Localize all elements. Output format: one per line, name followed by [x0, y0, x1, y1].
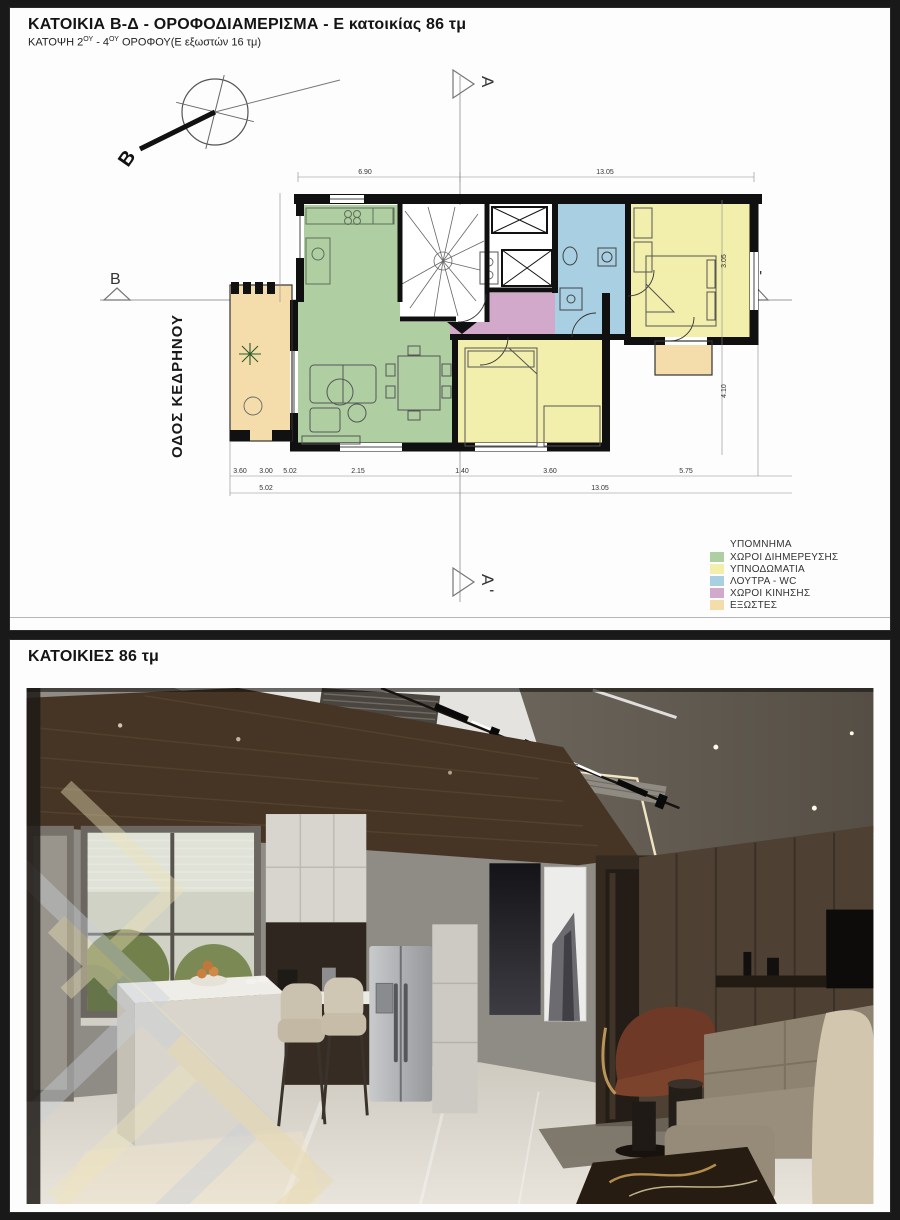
svg-text:5.75: 5.75	[679, 468, 693, 475]
svg-text:13.05: 13.05	[596, 169, 614, 176]
legend-color-chip	[710, 588, 724, 598]
floor-plan-drawing: B A A ' B B ' ΟΔΟΣ ΚΕΔΡΗΝΟΥ	[10, 56, 890, 614]
plan-subtitle: ΚΑΤΟΨΗ 2ΟΥ - 4ΟΥ ΟΡΟΦΟΥ(Ε εξωστών 16 τμ)	[28, 36, 466, 49]
north-label: B	[114, 146, 140, 170]
photo-title: ΚΑΤΟΙΚΙΕΣ 86 τμ	[28, 648, 159, 666]
room-bedroom-1	[628, 200, 758, 341]
svg-text:A ': A '	[478, 574, 497, 592]
photo-header: ΚΑΤΟΙΚΙΕΣ 86 τμ	[28, 648, 159, 666]
tall-cabinet	[432, 924, 477, 1113]
fridge	[369, 946, 432, 1102]
legend-item: ΧΩΡΟΙ ΔΙΗΜΕΡΕΥΣΗΣ	[710, 551, 838, 563]
svg-text:2.15: 2.15	[351, 468, 365, 475]
balcony-left	[230, 285, 292, 441]
legend: ΥΠΟΜΝΗΜΑ ΧΩΡΟΙ ΔΙΗΜΕΡΕΥΣΗΣ ΥΠΝΟΔΩΜΑΤΙΑ Λ…	[710, 539, 838, 611]
wall-artwork	[489, 863, 586, 1021]
svg-text:5.02: 5.02	[259, 485, 273, 492]
svg-text:3.05: 3.05	[721, 254, 728, 268]
plan-title: ΚΑΤΟΙΚΙΑ Β-Δ - ΟΡΟΦΟΔΙΑΜΕΡΙΣΜΑ - Ε κατοι…	[28, 16, 466, 34]
photo-top-edge	[27, 688, 874, 692]
floor-plan-sheet: ΚΑΤΟΙΚΙΑ Β-Δ - ΟΡΟΦΟΔΙΑΜΕΡΙΣΜΑ - Ε κατοι…	[10, 8, 890, 630]
room-bedroom-2	[455, 337, 608, 451]
section-marker-b-left: B	[104, 271, 130, 300]
legend-item: ΛΟΥΤΡΑ - WC	[710, 575, 838, 587]
photo-left-edge	[27, 688, 41, 1204]
svg-text:5.02: 5.02	[283, 468, 297, 475]
legend-color-chip	[710, 564, 724, 574]
legend-color-chip	[710, 552, 724, 562]
svg-text:1.40: 1.40	[455, 468, 469, 475]
svg-text:A: A	[478, 76, 497, 88]
north-arrow-icon: B	[114, 65, 340, 170]
legend-item: ΥΠΝΟΔΩΜΑΤΙΑ	[710, 563, 838, 575]
svg-text:6.90: 6.90	[358, 169, 372, 176]
plan-header: ΚΑΤΟΙΚΙΑ Β-Δ - ΟΡΟΦΟΔΙΑΜΕΡΙΣΜΑ - Ε κατοι…	[28, 16, 466, 49]
room-living	[290, 300, 455, 451]
svg-text:3.60: 3.60	[543, 468, 557, 475]
legend-title: ΥΠΟΜΝΗΜΑ	[730, 539, 838, 550]
room-bathroom	[555, 200, 628, 337]
svg-text:13.05: 13.05	[591, 485, 609, 492]
svg-text:4.10: 4.10	[721, 384, 728, 398]
svg-text:B: B	[110, 271, 121, 288]
balcony-right	[655, 341, 712, 375]
interior-render-photo	[20, 688, 880, 1204]
street-label: ΟΔΟΣ ΚΕΔΡΗΝΟΥ	[169, 314, 186, 458]
sheet-divider-line	[10, 617, 890, 618]
page: { "plan_panel": { "title": "ΚΑΤΟΙΚΙΑ Β-Δ…	[0, 0, 900, 1220]
room-kitchen	[298, 205, 400, 300]
legend-item: ΧΩΡΟΙ ΚΙΝΗΣΗΣ	[710, 587, 838, 599]
legend-color-chip	[710, 600, 724, 610]
legend-item: ΕΞΩΣΤΕΣ	[710, 599, 838, 611]
svg-text:3.00: 3.00	[259, 468, 273, 475]
interior-render-sheet: ΚΑΤΟΙΚΙΕΣ 86 τμ	[10, 640, 890, 1212]
legend-color-chip	[710, 576, 724, 586]
svg-text:3.60: 3.60	[233, 468, 247, 475]
